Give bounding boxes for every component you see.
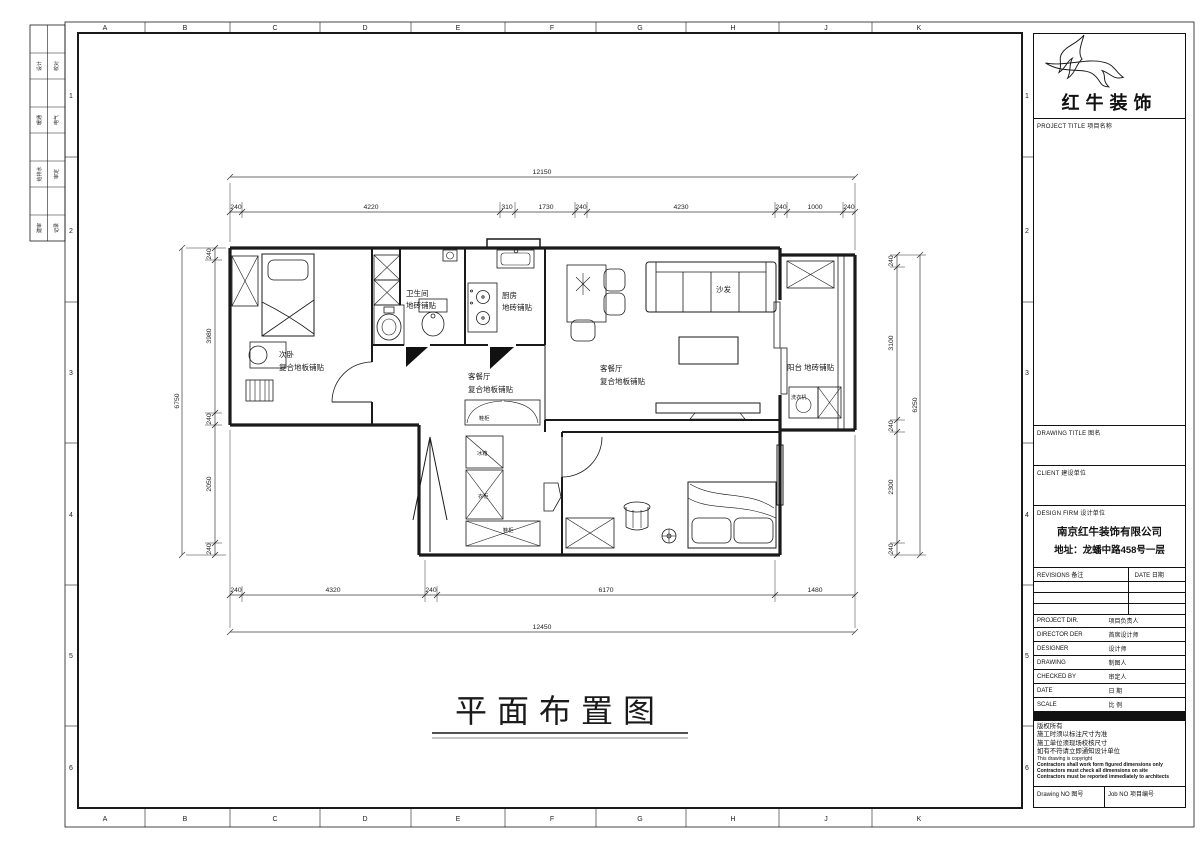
project-dir-row: PROJECT DIR. 项目负责人 xyxy=(1034,614,1185,628)
row-label-en: DIRECTOR DER xyxy=(1034,632,1106,638)
zone-letter: K xyxy=(917,816,922,823)
zone-letter: H xyxy=(730,816,735,823)
zone-number: 6 xyxy=(69,765,73,772)
shoe-cabinet xyxy=(465,400,540,425)
floor-plan: 次卧 复合地板铺贴 卫生间 地砖铺贴 厨房 地砖铺贴 客餐厅 复合地板铺贴 客餐… xyxy=(230,239,855,555)
room-finish-label: 复合地板铺贴 xyxy=(468,384,513,394)
zone-letter: A xyxy=(103,816,108,823)
row-label-en: DRAWING xyxy=(1034,660,1106,666)
kitchen-fixtures xyxy=(468,249,534,332)
row-label-cn: 审定人 xyxy=(1106,672,1126,681)
dim-label: 240 xyxy=(230,587,242,594)
dim-label: 310 xyxy=(501,204,513,211)
zone-number: 3 xyxy=(1025,370,1029,377)
basin-niche xyxy=(374,305,404,345)
zone-number: 1 xyxy=(1025,93,1029,100)
zone-letter: J xyxy=(824,816,828,823)
dim-label: 4230 xyxy=(673,204,688,211)
dining-chair xyxy=(604,269,625,291)
note-line: 施工单位须现场校核尺寸 xyxy=(1037,740,1182,748)
zone-number: 4 xyxy=(1025,512,1029,519)
revisions-date-label: DATE 日期 xyxy=(1131,570,1164,581)
dim-label: 240 xyxy=(775,204,787,211)
room-label: 客餐厅 xyxy=(600,363,623,373)
pillow xyxy=(268,260,308,280)
project-title-section: PROJECT TITLE 项目名称 xyxy=(1034,118,1185,425)
zone-letter: D xyxy=(362,25,367,32)
dim-label: 1730 xyxy=(538,204,553,211)
dim-label: 240 xyxy=(843,204,855,211)
pillow xyxy=(692,518,731,543)
revisions-section: REVISIONS 备注 DATE 日期 xyxy=(1034,567,1185,614)
dim-label: 240 xyxy=(206,543,213,555)
room-finish-label: 复合地板铺贴 xyxy=(600,376,645,386)
dim-label: 2300 xyxy=(888,479,895,494)
dim-label: 2050 xyxy=(206,476,213,491)
room-label: 厨房 xyxy=(502,290,517,300)
row-label-cn: 首席设计师 xyxy=(1106,630,1138,639)
zone-letter: D xyxy=(362,816,367,823)
design-firm-label: DESIGN FIRM 设计单位 xyxy=(1034,506,1185,517)
row-label-cn: 比 例 xyxy=(1106,700,1122,709)
dim-label: 240 xyxy=(206,248,213,260)
furniture-label: 冰箱 xyxy=(477,449,487,457)
firm-name: 南京红牛装饰有限公司 xyxy=(1034,524,1185,539)
zone-letter: G xyxy=(637,25,642,32)
checked-by-row: CHECKED BY 审定人 xyxy=(1034,669,1185,683)
redbull-logo-icon xyxy=(1034,34,1130,88)
note-line: 施工时须以标注尺寸为准 xyxy=(1037,731,1182,739)
drawing-row: DRAWING 制图人 xyxy=(1034,655,1185,669)
zone-number: 3 xyxy=(69,370,73,377)
washbasin xyxy=(377,314,401,340)
zone-letter: C xyxy=(272,25,277,32)
windows xyxy=(774,255,844,505)
dim-label: 240 xyxy=(230,204,242,211)
dim-label: 3100 xyxy=(888,335,895,350)
row-label-cn: 日 期 xyxy=(1106,686,1122,695)
dim-label: 12450 xyxy=(533,624,552,631)
exterior-walls xyxy=(230,248,855,555)
zone-letter: G xyxy=(637,816,642,823)
dining-chair xyxy=(571,320,595,341)
zone-letter: E xyxy=(456,25,461,32)
washing-machine xyxy=(789,387,818,418)
bedroom2-furniture xyxy=(566,482,776,548)
zone-number: 6 xyxy=(1025,765,1029,772)
room-label: 阳台 地砖铺贴 xyxy=(787,362,835,372)
zone-letter: F xyxy=(550,25,554,32)
zone-letter: K xyxy=(917,25,922,32)
row-label-en: CHECKED BY xyxy=(1034,674,1106,680)
signoff-strip: 设计 校对 暖通 电气 给排水 审定 建审 记录 xyxy=(30,25,65,241)
table-decor xyxy=(576,273,590,295)
revision-row xyxy=(1034,592,1185,603)
signoff-label: 设计 xyxy=(36,61,43,71)
signoff-label: 给排水 xyxy=(36,166,43,181)
zone-letter: F xyxy=(550,816,554,823)
furniture-label: 鞋柜 xyxy=(479,414,489,422)
room-label: 次卧 xyxy=(279,349,294,359)
drawing-sheet: { "sheet": { "zone_letters": ["A","B","C… xyxy=(0,0,1200,844)
plan-title-group: 平面布置图 xyxy=(432,693,688,738)
furniture-label: 衣柜 xyxy=(478,492,488,500)
firm-address: 地址：龙蟠中路458号一层 xyxy=(1034,542,1185,556)
job-no-label: Job NO 项目编号 xyxy=(1105,787,1154,807)
zone-letter: B xyxy=(183,816,188,823)
dim-label: 240 xyxy=(888,543,895,555)
furniture-label: 鞋柜 xyxy=(503,526,513,534)
zone-number: 2 xyxy=(1025,228,1029,235)
room-labels: 次卧 复合地板铺贴 卫生间 地砖铺贴 厨房 地砖铺贴 客餐厅 复合地板铺贴 客餐… xyxy=(279,284,835,534)
dim-label: 12150 xyxy=(533,169,552,176)
zone-letter: A xyxy=(103,25,108,32)
room-finish-label: 地砖铺贴 xyxy=(502,302,532,312)
revision-row xyxy=(1034,581,1185,592)
drawing-title-label: DRAWING TITLE 图名 xyxy=(1034,426,1185,437)
logo-section: 红牛装饰 xyxy=(1034,34,1185,118)
coffee-table xyxy=(679,337,738,364)
note-line: Contractors must be reported immediately… xyxy=(1037,774,1182,780)
note-line: 如有不符请立即通知设计单位 xyxy=(1037,748,1182,756)
bathroom-door-swing xyxy=(406,347,428,367)
drawing-title-section: DRAWING TITLE 图名 xyxy=(1034,425,1185,465)
signoff-label: 暖通 xyxy=(36,115,43,125)
signoff-label: 校对 xyxy=(53,61,60,71)
title-block: 红牛装饰 PROJECT TITLE 项目名称 DRAWING TITLE 图名… xyxy=(1033,33,1186,808)
corner-bench xyxy=(544,483,561,511)
dim-label: 240 xyxy=(425,587,437,594)
living-furniture xyxy=(567,262,776,419)
copyright-notes: 版权所有 施工时须以标注尺寸为准 施工单位须现场校核尺寸 如有不符请立即通知设计… xyxy=(1034,720,1185,786)
dim-label: 4320 xyxy=(325,587,340,594)
date-row: DATE 日 期 xyxy=(1034,683,1185,697)
chair xyxy=(249,346,267,364)
revisions-label: REVISIONS 备注 xyxy=(1034,570,1131,581)
drawing-number-section: Drawing NO 图号 Job NO 项目编号 xyxy=(1034,786,1185,807)
plan-title: 平面布置图 xyxy=(455,693,665,729)
dim-label: 6750 xyxy=(174,393,181,408)
zone-number: 5 xyxy=(69,653,73,660)
row-label-cn: 制图人 xyxy=(1106,658,1126,667)
dimensions: 12150 240 4220 310 1730 240 4230 240 100… xyxy=(174,169,926,635)
dim-label: 6250 xyxy=(912,397,919,412)
dining-table xyxy=(567,265,606,322)
room-finish-label: 地砖铺贴 xyxy=(406,300,436,310)
signoff-label: 建审 xyxy=(36,223,43,233)
kitchen-door-swing xyxy=(490,347,514,369)
room-label: 客餐厅 xyxy=(468,371,491,381)
stool xyxy=(624,502,650,512)
director-row: DIRECTOR DER 首席设计师 xyxy=(1034,627,1185,641)
dining-chair xyxy=(604,293,625,315)
room-finish-label: 复合地板铺贴 xyxy=(279,362,324,372)
bed-single xyxy=(262,254,314,336)
zone-letter: C xyxy=(272,816,277,823)
bedroom1-furniture xyxy=(232,254,400,401)
dim-label: 240 xyxy=(575,204,587,211)
dim-label: 1480 xyxy=(807,587,822,594)
pillow xyxy=(734,518,773,543)
client-label: CLIENT 建设单位 xyxy=(1034,466,1185,477)
row-label-en: DESIGNER xyxy=(1034,646,1106,652)
dim-label: 6170 xyxy=(598,587,613,594)
zone-number: 1 xyxy=(69,93,73,100)
revisions-divider xyxy=(1128,568,1129,614)
dim-label: 240 xyxy=(888,420,895,432)
zone-number: 5 xyxy=(1025,653,1029,660)
client-section: CLIENT 建设单位 xyxy=(1034,465,1185,505)
tv xyxy=(656,403,760,413)
zone-letter: B xyxy=(183,25,188,32)
dim-label: 1000 xyxy=(807,204,822,211)
dim-label: 3980 xyxy=(206,328,213,343)
dim-label: 240 xyxy=(206,413,213,425)
row-label-cn: 项目负责人 xyxy=(1106,616,1138,625)
furniture-label: 沙发 xyxy=(716,284,731,294)
row-label-cn: 设计师 xyxy=(1106,644,1126,653)
design-firm-section: DESIGN FIRM 设计单位 南京红牛装饰有限公司 地址：龙蟠中路458号一… xyxy=(1034,505,1185,567)
sheet-canvas: A B C D E F G H J K A B C D E F G H J K … xyxy=(0,0,1200,844)
signoff-label: 记录 xyxy=(53,223,60,233)
project-title-label: PROJECT TITLE 项目名称 xyxy=(1034,119,1185,130)
designer-row: DESIGNER 设计师 xyxy=(1034,641,1185,655)
zone-letter: H xyxy=(730,25,735,32)
row-label-en: PROJECT DIR. xyxy=(1034,618,1106,624)
dim-label: 240 xyxy=(888,255,895,267)
tv-stand xyxy=(690,413,745,419)
zone-letter: E xyxy=(456,816,461,823)
room-label: 卫生间 xyxy=(406,288,429,298)
zone-number: 4 xyxy=(69,512,73,519)
interior-walls xyxy=(372,248,780,555)
signoff-label: 审定 xyxy=(53,169,60,179)
row-label-en: DATE xyxy=(1034,688,1106,694)
dim-label: 4220 xyxy=(363,204,378,211)
brand-name: 红牛装饰 xyxy=(1062,89,1158,115)
zone-letter: J xyxy=(824,25,828,32)
scale-row: SCALE 比 例 xyxy=(1034,697,1185,711)
drawing-no-label: Drawing NO 图号 xyxy=(1034,787,1105,807)
furniture-label: 洗衣机 xyxy=(791,393,807,401)
divider-bar xyxy=(1034,711,1185,720)
zone-number: 2 xyxy=(69,228,73,235)
row-label-en: SCALE xyxy=(1034,702,1106,708)
signoff-label: 电气 xyxy=(53,115,60,125)
bed-double xyxy=(688,482,776,548)
